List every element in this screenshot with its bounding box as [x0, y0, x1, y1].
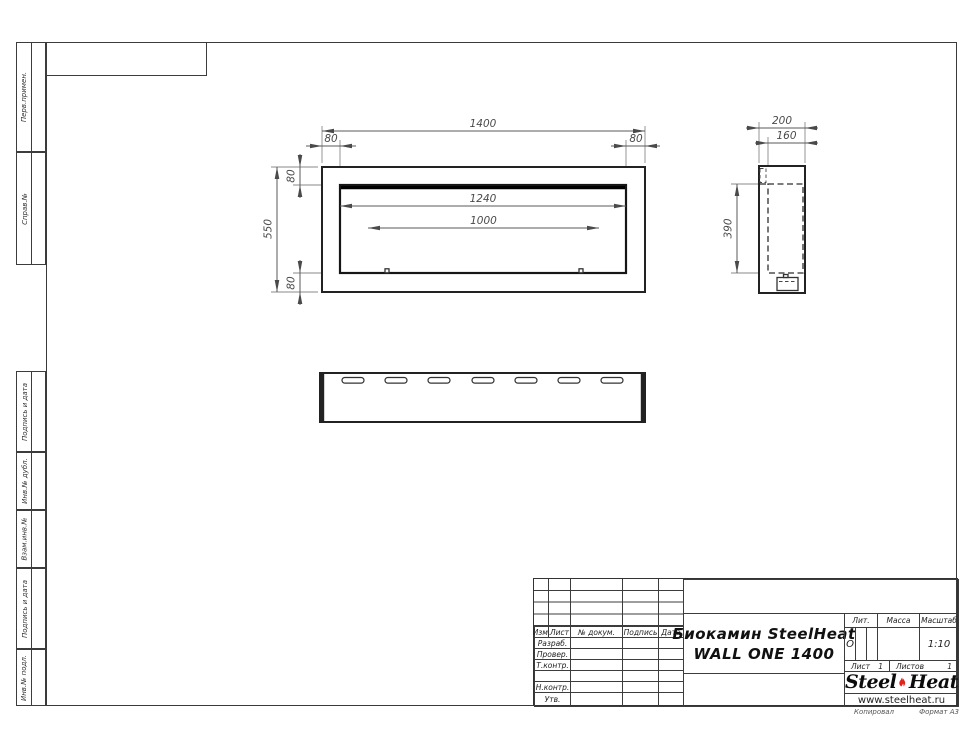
- tb-mass-label: Масса: [877, 613, 920, 628]
- logo-url: www.steelheat.ru: [845, 693, 958, 708]
- dim-front-offset-right: 80: [629, 133, 643, 145]
- logo-heat-text: Heat: [909, 671, 958, 693]
- footer-format-label: Формат А3: [910, 708, 968, 716]
- tb-row-utv: Утв.: [534, 692, 571, 707]
- front-mark-right: [579, 269, 583, 273]
- logo-steel-text: Steel: [845, 671, 896, 693]
- dim-front-offset-left: 80: [324, 133, 338, 145]
- dim-front-inner-width: 1240: [470, 193, 497, 205]
- side-outer-outline: [759, 166, 805, 293]
- title-line-1: Биокамин SteelHeat: [672, 624, 855, 644]
- title-block: Изм. Лист № докум. Подпись Дата Разраб. …: [533, 578, 958, 706]
- dim-side-inner-depth: 160: [776, 130, 796, 142]
- burner-slot: [558, 378, 580, 384]
- burner-slot: [515, 378, 537, 384]
- side-burner-box: [777, 278, 798, 291]
- dim-front-offset-top: 80: [286, 169, 298, 183]
- steelheat-logo: Steel Heat: [845, 671, 958, 693]
- tb-logo-cell: Steel Heat www.steelheat.ru: [844, 671, 959, 707]
- tb-scale-value: 1:10: [919, 627, 959, 661]
- burner-slot: [601, 378, 623, 384]
- drawing-sheet: Перв.примен. Справ.№ Подпись и дата Инв.…: [0, 0, 970, 749]
- tb-designation: [683, 579, 959, 614]
- side-view: 200 160 390: [723, 115, 819, 293]
- dim-front-burner-width: 1000: [470, 215, 497, 227]
- footer-copy-label: Копировал: [845, 708, 903, 716]
- title-line-2: WALL ONE 1400: [694, 644, 835, 664]
- front-mark-left: [385, 269, 389, 273]
- burner-slot: [342, 378, 364, 384]
- dim-front-height: 550: [263, 219, 275, 239]
- side-burner-notch: [784, 275, 789, 278]
- dim-side-inner-height: 390: [723, 218, 735, 238]
- tb-cell-empty: [570, 692, 623, 707]
- revision-table: [534, 579, 684, 627]
- dim-front-width: 1400: [470, 118, 497, 130]
- tb-mass-value: [877, 627, 920, 661]
- burner-slot: [385, 378, 407, 384]
- dim-side-depth: 200: [772, 115, 792, 127]
- bottom-view: [320, 373, 645, 422]
- tb-product-title: Биокамин SteelHeat WALL ONE 1400: [683, 613, 845, 674]
- tb-scale-label: Масштаб: [919, 613, 959, 628]
- dim-front-offset-bottom: 80: [286, 276, 298, 290]
- tb-cell-empty: [622, 692, 659, 707]
- front-view: 1400 80 80 550 80 80 124: [263, 118, 661, 305]
- tb-lit-label: Лит.: [844, 613, 878, 628]
- burner-slot: [428, 378, 450, 384]
- burner-slot: [472, 378, 494, 384]
- tb-material-cell: [683, 673, 845, 707]
- tb-cell-empty: [658, 692, 684, 707]
- flame-icon: [898, 672, 906, 692]
